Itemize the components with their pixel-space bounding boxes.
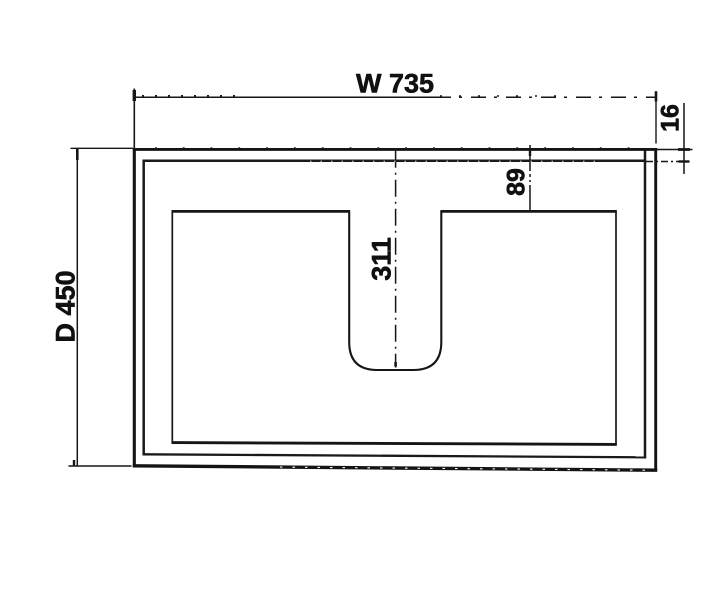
svg-text:W 735: W 735 bbox=[356, 69, 434, 99]
svg-text:311: 311 bbox=[367, 237, 397, 281]
svg-text:D 450: D 450 bbox=[51, 270, 81, 342]
svg-text:89: 89 bbox=[503, 168, 531, 196]
svg-text:16: 16 bbox=[657, 104, 685, 132]
